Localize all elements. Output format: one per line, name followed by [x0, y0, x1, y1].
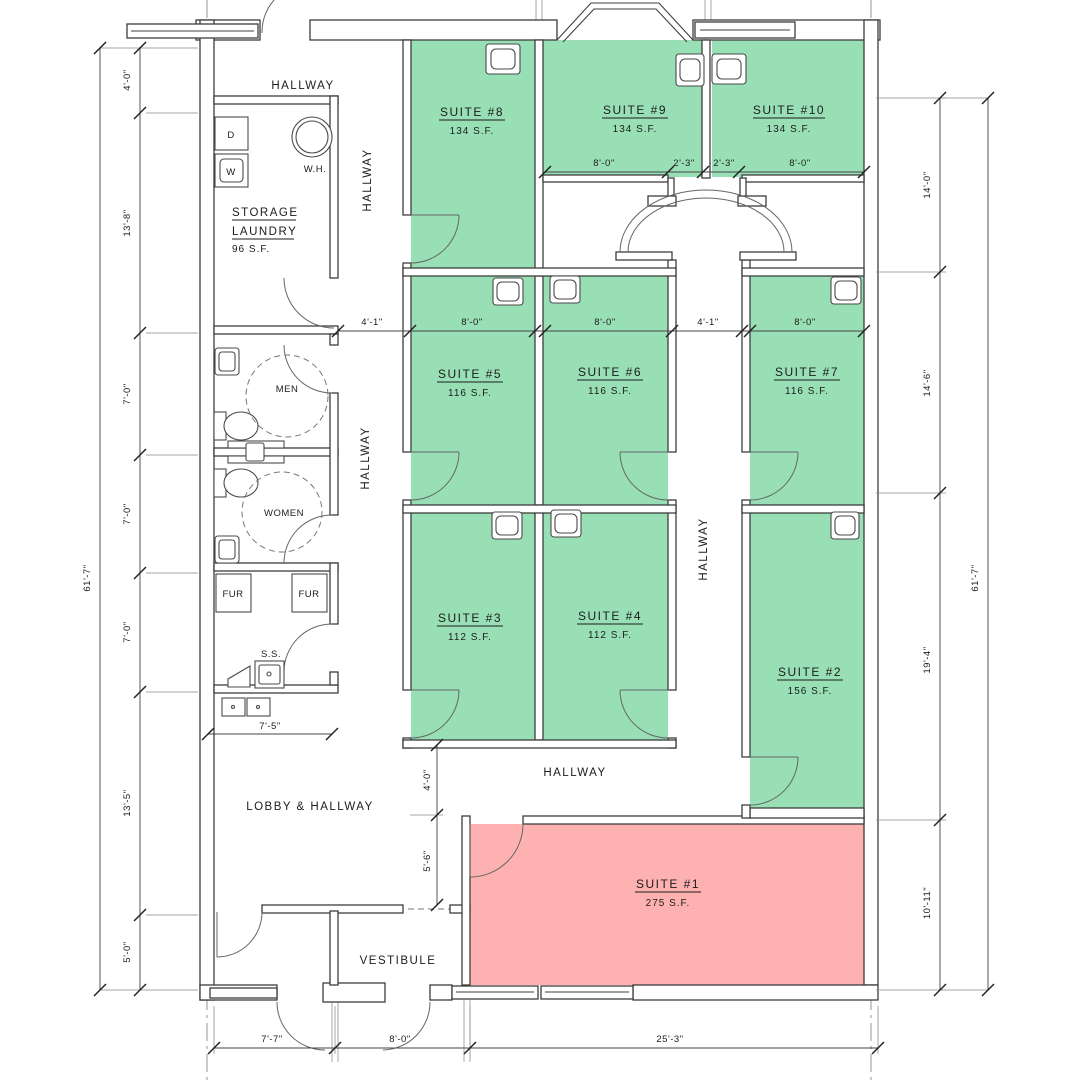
svg-text:SUITE #4: SUITE #4: [578, 609, 642, 623]
men-label: MEN: [276, 384, 299, 395]
dim-mech-width: 7'-5": [259, 721, 280, 732]
svg-text:134 S.F.: 134 S.F.: [450, 126, 495, 137]
svg-text:SUITE #7: SUITE #7: [775, 365, 839, 379]
dim-top-suites-1: 2'-3": [673, 158, 694, 169]
lobby-label: LOBBY & HALLWAY: [246, 801, 374, 813]
hallway-label-central-vertical: HALLWAY: [698, 517, 710, 580]
top-door-swing: [262, 0, 274, 33]
dim-left-0: 4'-0": [122, 69, 133, 90]
dim-left-1: 13'-8": [122, 209, 133, 236]
dim-right-overall: 61'-7": [970, 564, 981, 591]
svg-text:SUITE #8: SUITE #8: [440, 105, 504, 119]
svg-text:SUITE #3: SUITE #3: [438, 611, 502, 625]
mech-door-swing: [284, 624, 332, 672]
svg-text:116 S.F.: 116 S.F.: [588, 386, 632, 397]
women-door-swing: [284, 515, 332, 563]
men-toilet-bowl: [224, 412, 258, 440]
furnace-right-label: FUR: [298, 589, 319, 600]
dim-lobby-depth: 5'-6": [422, 850, 433, 871]
exterior-wall-bottom: [633, 985, 878, 1000]
dim-left-2: 7'-0": [122, 383, 133, 404]
washer-label: W: [226, 167, 235, 178]
dim-top-suites-0: 8'-0": [593, 158, 614, 169]
dim-left-overall: 61'-7": [82, 564, 93, 591]
svg-text:SUITE #10: SUITE #10: [753, 103, 825, 117]
storage-door-swing: [284, 278, 334, 328]
service-sink-label: S.S.: [261, 649, 281, 660]
dim-top-suites-2: 2'-3": [713, 158, 734, 169]
mop-wedge: [228, 666, 250, 687]
dim-right-3: 10'-11": [922, 887, 933, 919]
exterior-wall-bottom: [430, 985, 452, 1000]
svg-text:112 S.F.: 112 S.F.: [448, 632, 492, 643]
dryer-label: D: [227, 130, 234, 141]
svg-text:275 S.F.: 275 S.F.: [646, 898, 691, 909]
vestibule-label: VESTIBULE: [360, 955, 437, 967]
dim-right-1: 14'-6": [922, 369, 933, 396]
lobby-door-swing: [217, 912, 262, 957]
dim-left-5: 13'-5": [122, 789, 133, 816]
dim-left-3: 7'-0": [122, 503, 133, 524]
floor-plan-svg: HALLWAY HALLWAY HALLWAY HALLWAY HALLWAY …: [0, 0, 1080, 1080]
entry-door-swing: [277, 1002, 325, 1050]
women-label: WOMEN: [264, 508, 304, 519]
suite-4-room[interactable]: [543, 513, 668, 740]
hallway-label-lower: HALLWAY: [543, 767, 606, 779]
dim-bottom-2: 25'-3": [656, 1034, 683, 1045]
svg-text:134 S.F.: 134 S.F.: [613, 124, 658, 135]
dim-mid-suites-0: 4'-1": [361, 317, 382, 328]
dim-hallway-width: 4'-0": [422, 769, 433, 790]
svg-text:SUITE #2: SUITE #2: [778, 665, 842, 679]
exterior-wall-left: [200, 20, 214, 1000]
exterior-wall-right: [864, 20, 878, 985]
svg-text:SUITE #9: SUITE #9: [603, 103, 667, 117]
svg-text:134 S.F.: 134 S.F.: [767, 124, 812, 135]
dim-mid-suites-1: 8'-0": [461, 317, 482, 328]
water-heater-label: W.H.: [304, 164, 327, 175]
dim-right-0: 14'-0": [922, 171, 933, 198]
svg-text:SUITE #5: SUITE #5: [438, 367, 502, 381]
dim-left-4: 7'-0": [122, 621, 133, 642]
hallway-label-top: HALLWAY: [271, 80, 334, 92]
women-toilet-bowl: [224, 469, 258, 497]
dim-top-suites-3: 8'-0": [789, 158, 810, 169]
laundry-label: LAUNDRY: [232, 226, 297, 238]
dim-right-2: 19'-4": [922, 646, 933, 673]
svg-text:156 S.F.: 156 S.F.: [788, 686, 833, 697]
svg-text:116 S.F.: 116 S.F.: [448, 388, 492, 399]
dim-mid-suites-2: 8'-0": [594, 317, 615, 328]
dim-left-6: 5'-0": [122, 941, 133, 962]
storage-area-label: 96 S.F.: [232, 244, 270, 255]
hallway-label-lower-vertical: HALLWAY: [360, 426, 372, 489]
exterior-wall-top: [310, 20, 557, 40]
svg-text:112 S.F.: 112 S.F.: [588, 630, 632, 641]
dim-mid-suites-4: 8'-0": [794, 317, 815, 328]
furnace-left-label: FUR: [222, 589, 243, 600]
suite-2-room[interactable]: [750, 513, 864, 808]
storage-label: STORAGE: [232, 207, 299, 219]
entry-door-frame: [323, 983, 385, 1002]
dim-mid-suites-3: 4'-1": [697, 317, 718, 328]
water-heater: [292, 117, 332, 157]
svg-text:SUITE #1: SUITE #1: [636, 877, 700, 891]
dim-bottom-1: 8'-0": [389, 1034, 410, 1045]
storefront-window: [210, 988, 277, 998]
dim-bottom-0: 7'-7": [261, 1034, 282, 1045]
svg-text:116 S.F.: 116 S.F.: [785, 386, 829, 397]
svg-text:SUITE #6: SUITE #6: [578, 365, 642, 379]
hallway-label-upper-vertical: HALLWAY: [362, 148, 374, 211]
floor-plan-canvas: HALLWAY HALLWAY HALLWAY HALLWAY HALLWAY …: [0, 0, 1080, 1080]
